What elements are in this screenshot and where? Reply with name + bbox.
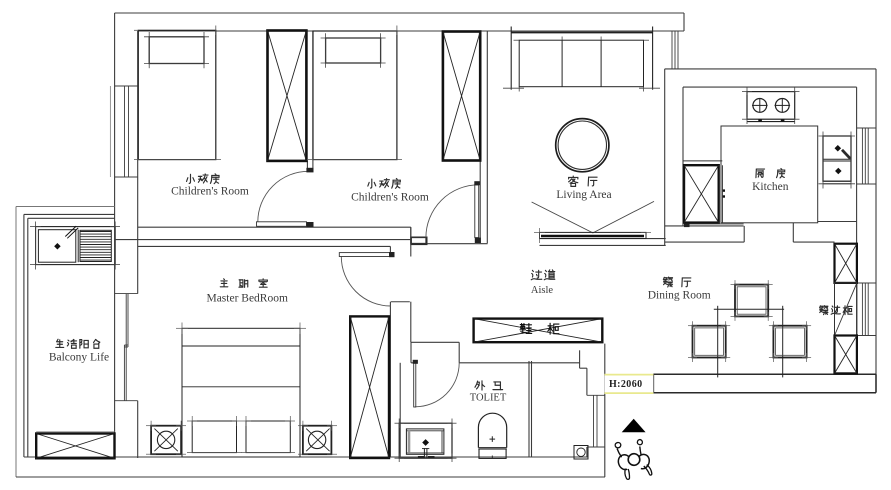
svg-text:Balcony Life: Balcony Life: [49, 352, 109, 364]
svg-text:Living Area: Living Area: [556, 189, 611, 201]
svg-text:H:2060: H:2060: [609, 379, 643, 390]
svg-text:Children's Room: Children's Room: [171, 185, 249, 197]
svg-text:Children's Room: Children's Room: [351, 192, 429, 204]
svg-text:TOLIET: TOLIET: [470, 392, 507, 403]
svg-text:Dining Room: Dining Room: [648, 289, 711, 301]
svg-text:Aisle: Aisle: [531, 285, 554, 296]
svg-text:Kitchen: Kitchen: [752, 181, 789, 193]
svg-text:Master BedRoom: Master BedRoom: [206, 293, 288, 305]
